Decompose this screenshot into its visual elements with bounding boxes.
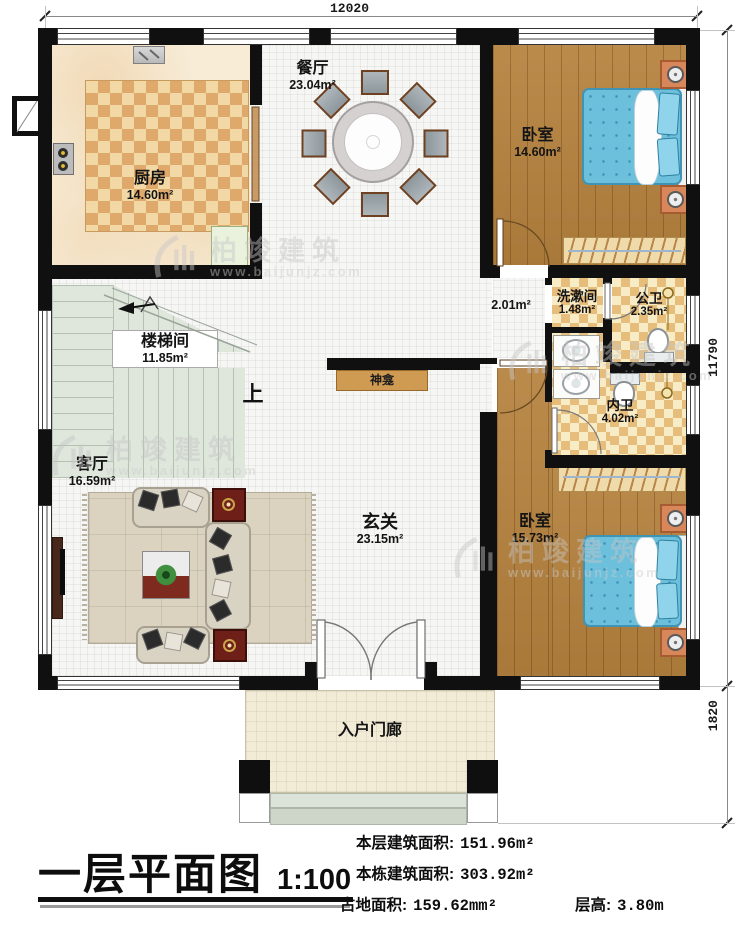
dimension-line-right — [727, 30, 728, 823]
stat-value: 3.80m — [617, 897, 664, 915]
room-name-washroom: 洗漱间 — [548, 289, 606, 304]
door-swing-arc — [325, 622, 371, 680]
extension-line — [498, 823, 735, 824]
sink-tap — [150, 50, 159, 58]
scale-label: 1:100 — [277, 864, 351, 896]
door-swing-arc — [371, 622, 417, 680]
door-leaf — [497, 219, 503, 266]
door-leaf — [552, 408, 557, 453]
dim-label-right-upper: 11790 — [706, 338, 721, 377]
stat-label: 本栋建筑面积: — [356, 866, 454, 883]
door-swing-arc — [503, 221, 549, 267]
room-label-kitchen: 厨房 14.60m² — [100, 170, 200, 202]
stat-value: 159.62mm² — [413, 897, 497, 915]
door-swing-arc — [500, 366, 547, 413]
room-name-foyer: 玄关 — [330, 512, 430, 532]
porch-name: 入户门廊 — [315, 722, 425, 740]
sink-tap — [139, 52, 148, 60]
stat-label: 本层建筑面积: — [356, 835, 454, 852]
room-name-bedroom-top: 卧室 — [495, 127, 580, 145]
room-area-foyer: 23.15m² — [330, 532, 430, 546]
niche-diagonal — [17, 101, 37, 132]
page-title: 一层平面图 — [38, 851, 263, 899]
room-area-public-bath: 2.35m² — [620, 306, 678, 319]
dim-label-right-lower: 1820 — [706, 700, 721, 731]
title-underline-2 — [40, 905, 350, 908]
stat-label: 层高: — [575, 897, 611, 914]
dimension-line-top — [45, 16, 697, 17]
entry-door-leaf — [417, 620, 425, 678]
room-name-living: 客厅 — [52, 456, 132, 474]
room-area-living: 16.59m² — [52, 474, 132, 488]
kitchen-sliding-door — [252, 107, 259, 201]
extension-line — [700, 30, 735, 31]
room-label-stairwell: 楼梯间 11.85m² — [116, 333, 214, 365]
room-label-dining: 餐厅 23.04m² — [265, 60, 360, 92]
room-label-washroom: 洗漱间 1.48m² — [548, 289, 606, 317]
room-name-kitchen: 厨房 — [100, 170, 200, 188]
extension-line — [697, 6, 698, 28]
corridor-area-value: 2.01m² — [482, 298, 540, 312]
room-area-dining: 23.04m² — [265, 78, 360, 92]
stairs-up-label: 上 — [238, 383, 268, 407]
room-area-kitchen: 14.60m² — [100, 188, 200, 202]
porch-label: 入户门廊 — [315, 722, 425, 740]
entry-door-leaf — [317, 620, 325, 678]
stairs-up-text: 上 — [238, 383, 268, 407]
shower-head-icon — [662, 388, 672, 398]
extension-line — [700, 686, 735, 687]
room-area-washroom: 1.48m² — [548, 304, 606, 317]
floor-plan-canvas: 神龛 — [0, 0, 750, 929]
stat-label: 占地面积: — [340, 897, 407, 914]
title-block: 一层平面图1:100 — [38, 840, 351, 902]
stat-value: 303.92m² — [460, 866, 534, 884]
extension-line — [45, 6, 46, 28]
room-area-ensuite: 4.02m² — [585, 413, 655, 426]
dim-label-top: 12020 — [330, 1, 369, 16]
stat-land-area: 占地面积:159.62mm² — [340, 893, 497, 915]
room-label-bedroom-bottom: 卧室 15.73m² — [495, 513, 575, 545]
room-area-bedroom-top: 14.60m² — [495, 145, 580, 159]
door-leaf — [500, 360, 547, 366]
room-label-living: 客厅 16.59m² — [52, 456, 132, 488]
corridor-area-label: 2.01m² — [482, 298, 540, 312]
stat-floor-area: 本层建筑面积:151.96m² — [356, 831, 535, 853]
stat-building-area: 本栋建筑面积:303.92m² — [356, 862, 535, 884]
room-name-ensuite: 内卫 — [585, 398, 655, 413]
room-name-public-bath: 公卫 — [620, 291, 678, 306]
room-area-stairwell: 11.85m² — [116, 351, 214, 365]
room-label-foyer: 玄关 23.15m² — [330, 512, 430, 546]
room-name-bedroom-bottom: 卧室 — [495, 513, 575, 531]
room-label-bedroom-top: 卧室 14.60m² — [495, 127, 580, 159]
room-name-dining: 餐厅 — [265, 60, 360, 78]
room-name-stairwell: 楼梯间 — [116, 333, 214, 351]
room-label-public-bath: 公卫 2.35m² — [620, 291, 678, 319]
room-area-bedroom-bottom: 15.73m² — [495, 531, 575, 545]
title-underline — [38, 897, 353, 902]
stat-floor-height: 层高:3.80m — [575, 893, 664, 915]
room-label-ensuite: 内卫 4.02m² — [585, 398, 655, 426]
stat-value: 151.96m² — [460, 835, 534, 853]
